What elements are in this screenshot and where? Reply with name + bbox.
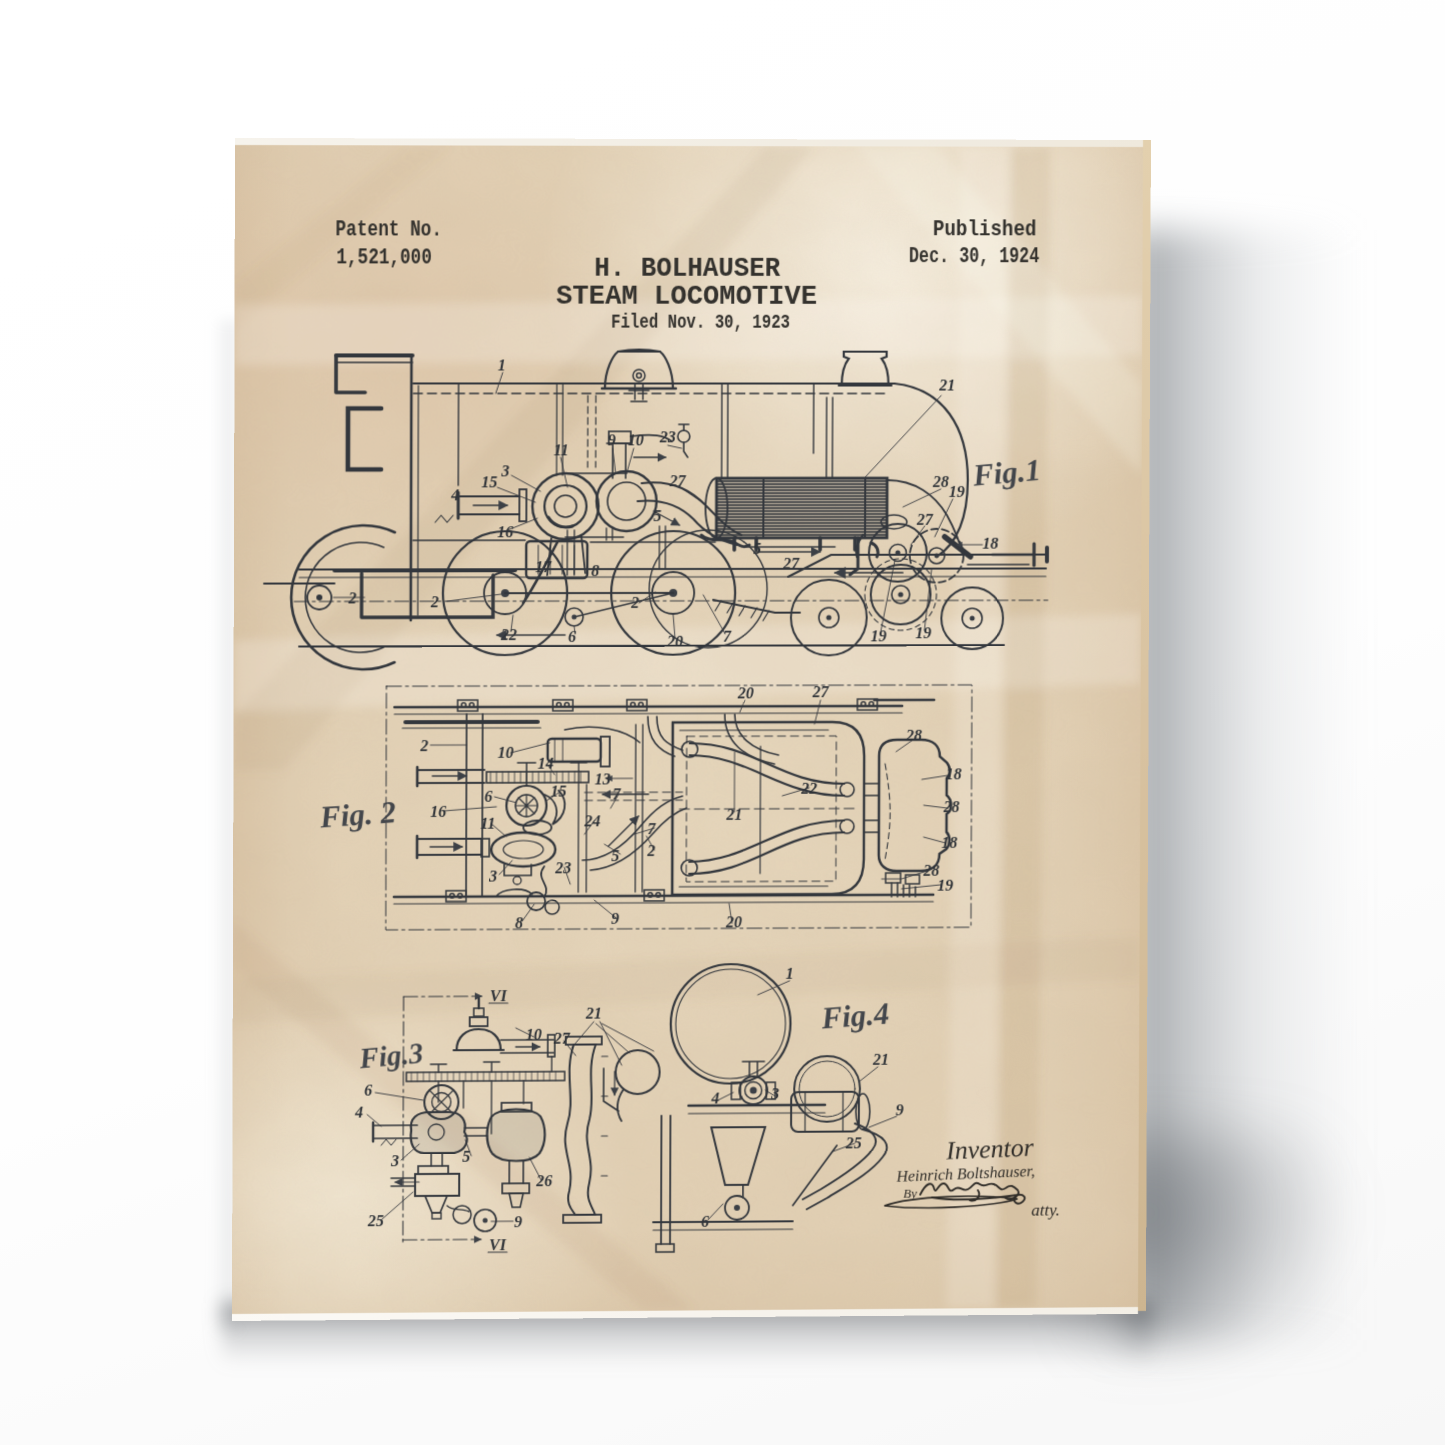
svg-text:28: 28 [905, 728, 922, 745]
svg-text:By: By [903, 1186, 917, 1201]
svg-text:6: 6 [701, 1214, 710, 1231]
svg-text:Filed Nov. 30, 1923: Filed Nov. 30, 1923 [611, 312, 790, 335]
svg-text:Published: Published [933, 217, 1037, 242]
svg-text:1: 1 [786, 966, 794, 983]
svg-text:2: 2 [347, 591, 356, 608]
svg-text:3: 3 [500, 463, 509, 480]
svg-text:10: 10 [498, 745, 514, 762]
svg-text:19: 19 [949, 484, 965, 501]
svg-text:21: 21 [725, 807, 742, 824]
svg-text:23: 23 [659, 429, 676, 446]
svg-text:7: 7 [647, 821, 656, 838]
svg-text:22: 22 [800, 781, 817, 798]
svg-text:STEAM LOCOMOTIVE: STEAM LOCOMOTIVE [556, 282, 817, 313]
svg-text:27: 27 [782, 556, 800, 573]
svg-text:10: 10 [628, 432, 644, 449]
svg-text:Fig.3: Fig.3 [357, 1038, 424, 1076]
svg-text:27: 27 [669, 473, 687, 490]
svg-text:17: 17 [535, 559, 552, 576]
svg-text:1,521,000: 1,521,000 [336, 245, 432, 270]
svg-text:15: 15 [481, 474, 497, 491]
svg-text:6: 6 [568, 629, 577, 646]
svg-text:3: 3 [488, 869, 497, 886]
svg-text:7: 7 [613, 786, 622, 803]
svg-text:10: 10 [526, 1027, 542, 1044]
svg-text:8: 8 [591, 563, 599, 580]
svg-text:16: 16 [497, 524, 514, 541]
svg-text:Dec. 30, 1924: Dec. 30, 1924 [909, 244, 1039, 269]
svg-text:atty.: atty. [1031, 1201, 1060, 1220]
svg-text:21: 21 [938, 378, 955, 395]
svg-text:20: 20 [725, 914, 742, 931]
svg-text:Fig. 2: Fig. 2 [318, 794, 397, 834]
svg-text:19: 19 [937, 878, 953, 895]
svg-text:27: 27 [812, 684, 830, 701]
svg-text:16: 16 [430, 804, 447, 821]
svg-text:20: 20 [666, 634, 683, 651]
svg-text:18: 18 [946, 766, 962, 783]
svg-text:20: 20 [737, 685, 754, 702]
svg-text:2: 2 [419, 738, 428, 755]
svg-text:28: 28 [943, 799, 960, 816]
svg-text:22: 22 [500, 627, 517, 644]
svg-text:8: 8 [515, 915, 523, 932]
svg-text:7: 7 [723, 629, 732, 646]
svg-text:9: 9 [896, 1102, 904, 1119]
svg-text:Fig.1: Fig.1 [971, 452, 1042, 492]
svg-text:13: 13 [595, 772, 611, 789]
svg-text:26: 26 [535, 1173, 553, 1190]
svg-text:27: 27 [916, 512, 934, 529]
svg-text:4: 4 [710, 1091, 719, 1108]
svg-text:2: 2 [630, 595, 639, 612]
svg-text:27: 27 [553, 1031, 571, 1048]
svg-text:6: 6 [364, 1083, 373, 1100]
svg-text:19: 19 [915, 625, 931, 642]
svg-text:1: 1 [498, 358, 506, 375]
svg-text:4: 4 [354, 1105, 363, 1122]
svg-text:25: 25 [367, 1213, 384, 1230]
svg-text:H. BOLHAUSER: H. BOLHAUSER [594, 254, 780, 285]
svg-text:14: 14 [538, 756, 554, 773]
svg-text:Patent No.: Patent No. [335, 217, 442, 242]
svg-text:5: 5 [753, 541, 761, 558]
svg-text:5: 5 [462, 1149, 470, 1166]
svg-text:6: 6 [484, 789, 493, 806]
svg-text:Inventor: Inventor [945, 1133, 1035, 1165]
svg-text:Fig.4: Fig.4 [819, 996, 890, 1036]
svg-text:9: 9 [611, 911, 619, 928]
svg-text:2: 2 [430, 594, 439, 611]
svg-text:18: 18 [982, 536, 998, 553]
svg-text:23: 23 [554, 860, 571, 877]
svg-text:19: 19 [871, 628, 887, 645]
svg-text:11: 11 [480, 816, 495, 833]
svg-text:21: 21 [585, 1006, 602, 1023]
svg-text:21: 21 [872, 1052, 889, 1069]
svg-text:25: 25 [845, 1135, 862, 1152]
svg-text:18: 18 [941, 835, 957, 852]
svg-text:9: 9 [608, 432, 616, 449]
svg-text:2: 2 [646, 843, 655, 860]
svg-text:5: 5 [611, 848, 619, 865]
svg-text:15: 15 [551, 784, 567, 801]
svg-text:24: 24 [583, 813, 600, 830]
svg-text:5: 5 [653, 508, 661, 525]
svg-text:3: 3 [770, 1086, 779, 1103]
svg-text:11: 11 [554, 442, 569, 459]
svg-text:28: 28 [932, 474, 949, 491]
svg-text:3: 3 [390, 1153, 399, 1170]
svg-text:4: 4 [450, 487, 459, 504]
svg-text:9: 9 [514, 1214, 522, 1231]
